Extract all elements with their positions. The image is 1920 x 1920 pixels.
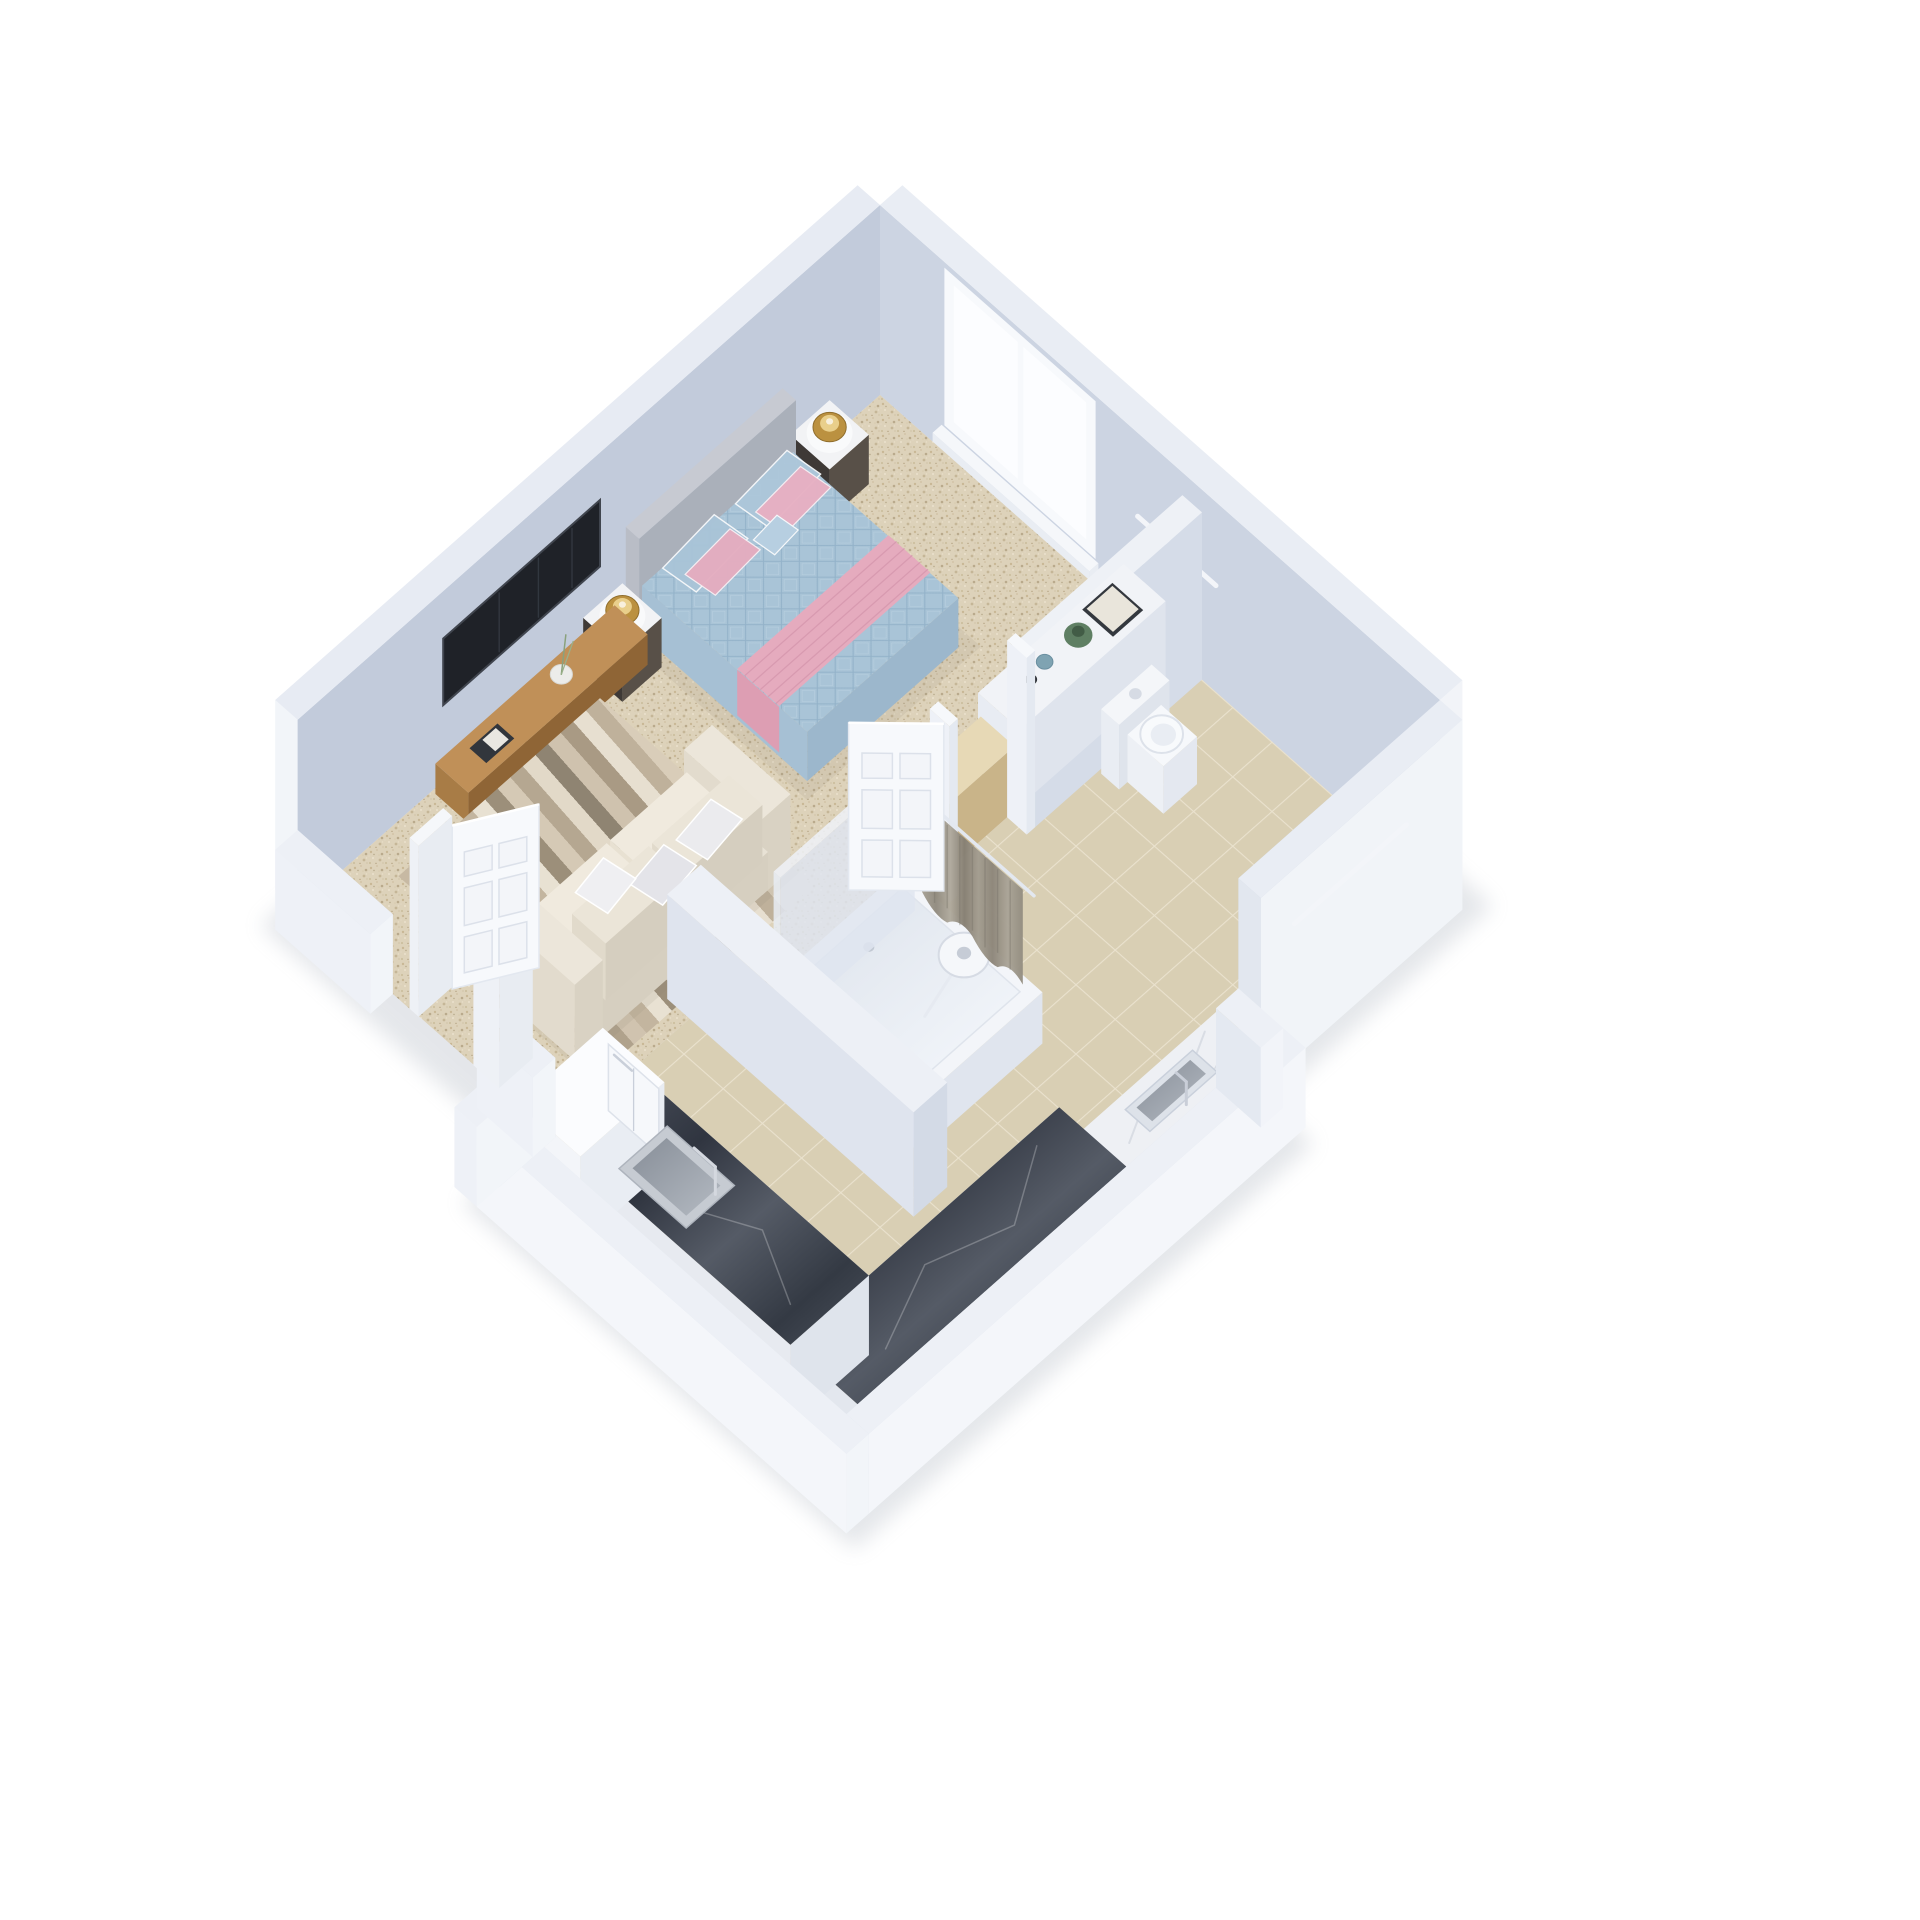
- bath-doorframe-post-1: [1007, 633, 1035, 835]
- shower-head-center: [957, 947, 971, 960]
- entry-door: [452, 804, 539, 989]
- toilet-seat-inner: [1151, 723, 1176, 745]
- lamp-1-top: [826, 418, 833, 424]
- entry-jamb-west: [410, 808, 453, 1017]
- bathroom-door: [849, 723, 944, 891]
- desk-plant-center: [1072, 626, 1085, 637]
- lamp-2-top: [619, 601, 626, 607]
- floorplan-svg: [0, 0, 1920, 1920]
- floorplan-render: [0, 0, 1920, 1920]
- toilet-flush-button: [1129, 688, 1142, 699]
- desk-vase-blue: [1036, 654, 1053, 669]
